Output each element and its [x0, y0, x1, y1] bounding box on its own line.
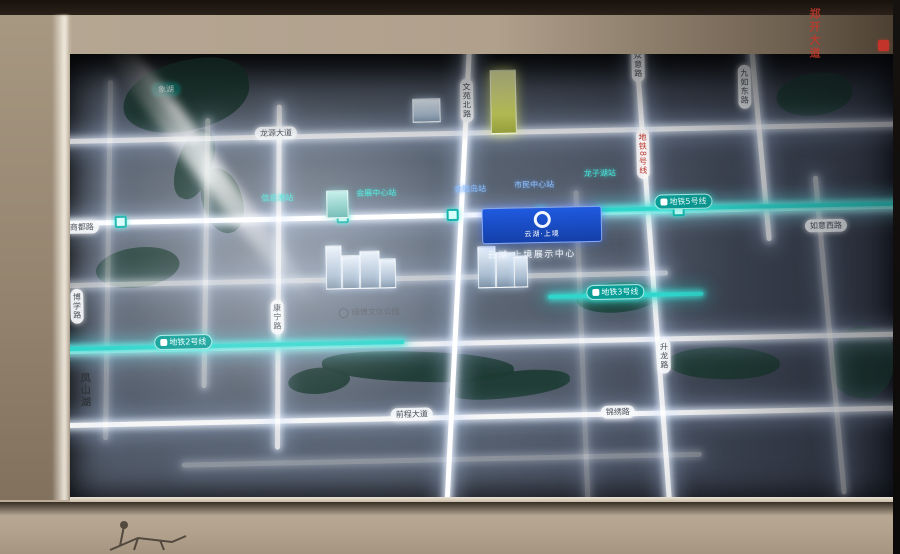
frame-drop-shadow	[0, 502, 900, 516]
red-vertical-road-text: 郑开大道	[806, 8, 822, 60]
red-marker-icon	[878, 40, 889, 51]
photo-right-edge	[893, 0, 900, 554]
ceiling-shadow-band	[0, 0, 900, 15]
glare-streak	[95, 54, 326, 315]
glare-layer	[70, 54, 893, 500]
map-content: 地铁5号线地铁2号线地铁3号线地铁8号线龙源大道商都路前程大道锦绣路如意西路博学…	[70, 54, 893, 500]
wall-edge-highlight	[52, 15, 70, 554]
wall-top-strip	[0, 15, 900, 55]
decor-sketch-object	[90, 520, 200, 554]
illuminated-map-panel: 地铁5号线地铁2号线地铁3号线地铁8号线龙源大道商都路前程大道锦绣路如意西路博学…	[70, 54, 893, 500]
